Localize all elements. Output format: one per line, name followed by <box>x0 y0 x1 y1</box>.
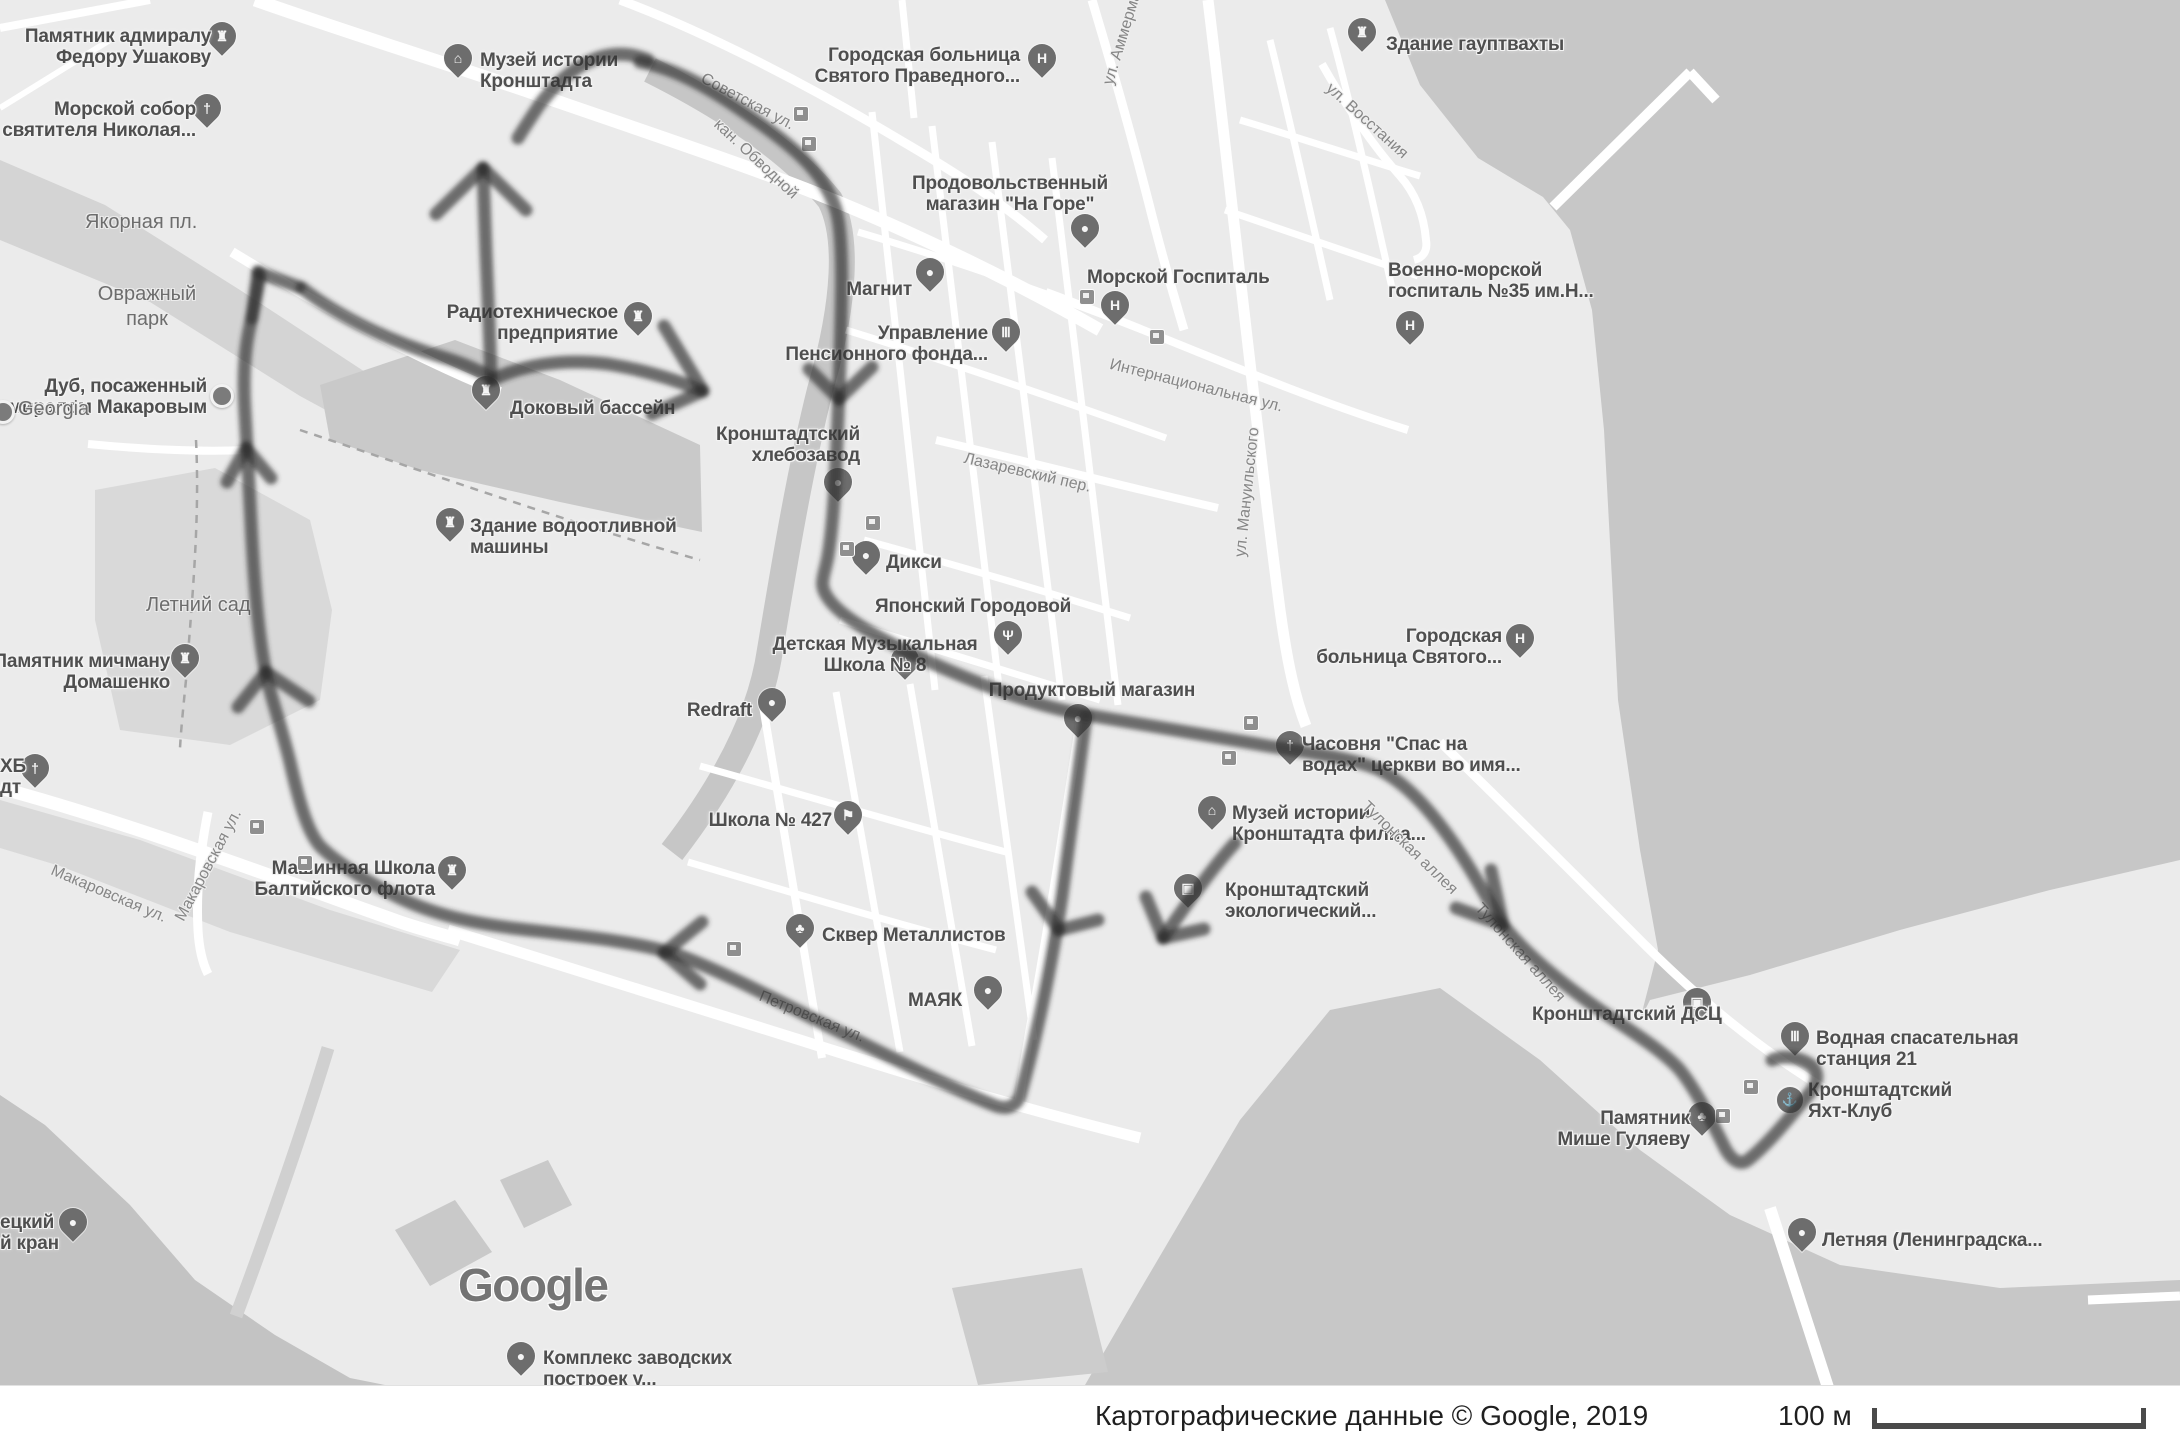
bus-stop-icon <box>726 941 742 957</box>
castle-icon: ♜ <box>436 508 464 536</box>
poi-label-kronshtadtsky-hlebozavod: Кронштадтскийхлебозавод <box>716 424 860 467</box>
poi-label-prodovolstvenny-magazin: Продовольственныймагазин "На Горе" <box>912 173 1108 216</box>
poi-label-tserkov-ehb-fragment: ХБдт <box>0 756 26 799</box>
poi-label-shkola-427: Школа № 427 <box>709 810 832 831</box>
poi-label-redraft: Redraft <box>687 700 752 721</box>
museum-icon: ⌂ <box>1198 796 1226 824</box>
poi-label-zdanie-vodootlivnoy-mashiny: Здание водоотливноймашины <box>470 516 677 559</box>
castle-icon: ♜ <box>438 856 466 884</box>
poi-label-kronshtadtsky-dsc: Кронштадтский ДСЦ <box>1532 1004 1722 1025</box>
poi-label-mashinnaya-shkola: Машинная ШколаБалтийского флота <box>254 858 435 901</box>
poi-label-mayak: МАЯК <box>908 990 962 1011</box>
poi-label-radiotehnicheskoe-predpriyatie: Радиотехническоепредприятие <box>447 302 618 345</box>
camera-icon: ▣ <box>1174 874 1202 902</box>
poi-label-gorodskaya-bolnitsa-svyatogo: Городскаябольница Святого... <box>1316 626 1502 669</box>
shopping-bag-icon: ● <box>916 258 944 286</box>
hospital-icon[interactable]: H <box>1022 38 1062 78</box>
poi-label-gorodskaya-bolnitsa-pravednogo: Городская больницаСвятого Праведного... <box>815 45 1020 88</box>
restaurant-icon: Ψ <box>994 621 1022 649</box>
poi-overlay: ♜Памятник адмиралуФедору Ушакову†Морской… <box>0 0 2180 1452</box>
bus-stop-icon <box>1243 715 1259 731</box>
shopping-bag-icon[interactable]: ● <box>752 682 792 722</box>
bus-stop-icon <box>801 136 817 152</box>
church-cross-icon: † <box>193 94 221 122</box>
shopping-bag-icon[interactable]: ● <box>910 252 950 292</box>
tree-icon: ♣ <box>786 914 814 942</box>
castle-icon[interactable]: ♜ <box>165 638 205 678</box>
scale-bar <box>1872 1408 2146 1429</box>
castle-icon: ♜ <box>208 22 236 50</box>
area-label-3: Летний сад <box>146 594 250 617</box>
poi-label-yaponsky-gorodovoy: Японский Городовой <box>875 596 1071 617</box>
poi-label-morskoy-gospital: Морской Госпиталь <box>1087 267 1270 288</box>
castle-icon: ♜ <box>624 302 652 330</box>
bank-columns-icon[interactable]: Ⅲ <box>986 312 1026 352</box>
hospital-icon[interactable]: H <box>1095 285 1135 325</box>
bus-stop-icon <box>1743 1079 1759 1095</box>
poi-label-pamyatnik-ushakovu: Памятник адмиралуФедору Ушакову <box>25 26 211 69</box>
cart-icon[interactable]: ● <box>1058 698 1098 738</box>
dot-icon[interactable]: ● <box>501 1336 541 1376</box>
hospital-icon: H <box>1506 624 1534 652</box>
boat-icon[interactable]: ● <box>1782 1212 1822 1252</box>
poi-label-pamyatnik-domashenko: Памятник мичмануДомашенко <box>0 651 170 694</box>
cart-icon: ● <box>852 541 880 569</box>
area-label-2: парк <box>126 308 168 331</box>
poi-label-yaht-klub: КронштадтскийЯхт-Клуб <box>1808 1080 1952 1123</box>
tree-icon[interactable]: ♣ <box>780 908 820 948</box>
cart-icon: ● <box>1071 214 1099 242</box>
poi-label-kran-fragment: ецкийй кран <box>0 1212 59 1255</box>
castle-icon[interactable]: ♜ <box>430 502 470 542</box>
street-label-5: Интернациональная ул. <box>1108 356 1285 416</box>
scale-label: 100 м <box>1778 1400 1852 1432</box>
bus-stop-icon <box>297 855 313 871</box>
street-label-7: Макаровская ул. <box>48 862 169 927</box>
bank-columns-icon[interactable]: Ⅲ <box>1775 1016 1815 1056</box>
castle-icon: ♜ <box>1348 18 1376 46</box>
cart-icon: ● <box>1064 704 1092 732</box>
poi-label-georgia: Georgia <box>18 398 89 421</box>
anchor-icon[interactable]: ⚓ <box>1775 1085 1805 1115</box>
hospital-icon: H <box>1028 44 1056 72</box>
street-label-8: Макаровская ул. <box>172 807 246 925</box>
street-label-9: Петровская ул. <box>756 988 867 1047</box>
poi-label-upravlenie-pensionnogo-fonda: УправлениеПенсионного фонда... <box>785 323 988 366</box>
bus-stop-icon <box>1079 289 1095 305</box>
attribution-text: Картографические данные © Google, 2019 <box>1095 1400 1648 1432</box>
shopping-bag-icon: ● <box>758 688 786 716</box>
dot-icon: ● <box>59 1208 87 1236</box>
castle-icon[interactable]: ♜ <box>466 370 506 410</box>
poi-label-diksi: Дикси <box>886 552 942 573</box>
bus-stop-icon <box>1221 750 1237 766</box>
attribution-bar: Картографические данные © Google, 2019 1… <box>0 1385 2180 1452</box>
bank-columns-icon: Ⅲ <box>992 318 1020 346</box>
poi-label-chasovnya-spas-na-vodah: Часовня "Спас наводах" церкви во имя... <box>1302 734 1521 777</box>
poi-label-magnit: Магнит <box>846 279 912 300</box>
area-label-1: Овражный <box>98 283 196 306</box>
dot-icon: ● <box>507 1342 535 1370</box>
bus-stop-icon <box>1715 1108 1731 1124</box>
dot-icon[interactable]: ● <box>53 1202 93 1242</box>
school-icon: ⚑ <box>834 801 862 829</box>
museum-icon: ⌂ <box>444 44 472 72</box>
poi-label-skver-metallistov: Сквер Металлистов <box>822 925 1005 946</box>
street-label-6: Лазаревский пер. <box>962 450 1093 497</box>
street-label-4: ул. Мануильского <box>1232 427 1264 558</box>
poi-label-kronshtadtsky-ekologichesky: Кронштадтскийэкологический... <box>1225 880 1376 923</box>
hospital-icon: H <box>1101 291 1129 319</box>
castle-icon: ♜ <box>171 644 199 672</box>
hospital-icon[interactable]: H <box>1500 618 1540 658</box>
bus-stop-icon <box>839 541 855 557</box>
museum-icon[interactable]: ⌂ <box>1192 790 1232 830</box>
poi-label-vodnaya-spasatelnaya-stantsiya: Водная спасательнаястанция 21 <box>1816 1028 2018 1071</box>
bank-columns-icon: Ⅲ <box>1781 1022 1809 1050</box>
poi-label-pamyatnik-mishe-gulyaevu: ПамятникМише Гуляеву <box>1557 1108 1690 1151</box>
poi-label-zdanie-gauptvahty: Здание гауптвахты <box>1386 34 1564 55</box>
restaurant-icon[interactable]: Ψ <box>988 615 1028 655</box>
street-label-11: Тулонская аллея <box>1471 900 1569 1006</box>
poi-label-detskaya-muz-shkola-8: Детская МузыкальнаяШкола № 8 <box>772 634 977 677</box>
poi-label-letnyaya-pristan: Летняя (Ленинградска... <box>1822 1230 2043 1251</box>
google-logo[interactable]: Google <box>458 1258 607 1312</box>
dot-icon[interactable]: ● <box>818 462 858 502</box>
castle-icon[interactable]: ♜ <box>618 296 658 336</box>
poi-label-morskoy-sobor: Морской соборсвятителя Николая... <box>2 99 196 142</box>
poi-label-produktovy-magazin: Продуктовый магазин <box>989 680 1195 701</box>
bus-stop-icon <box>249 819 265 835</box>
poi-label-voenno-morskoy-gospital: Военно-морскойгоспиталь №35 им.Н... <box>1388 260 1594 303</box>
church-cross-icon: † <box>1276 731 1304 759</box>
castle-icon: ♜ <box>472 376 500 404</box>
street-label-3: ул. Восстания <box>1322 80 1411 163</box>
dot-icon[interactable]: ● <box>968 970 1008 1010</box>
poi-label-dokovy-basseyn: Доковый бассейн <box>510 398 675 419</box>
bus-stop-icon <box>865 515 881 531</box>
school-icon[interactable]: ⚑ <box>828 795 868 835</box>
boat-icon: ● <box>1788 1218 1816 1246</box>
hospital-icon: H <box>1396 311 1424 339</box>
hospital-icon[interactable]: H <box>1390 305 1430 345</box>
museum-icon[interactable]: ⌂ <box>438 38 478 78</box>
bus-stop-icon <box>1149 329 1165 345</box>
dot-icon: ● <box>974 976 1002 1004</box>
camera-icon[interactable]: ▣ <box>1168 868 1208 908</box>
tree-icon: ♣ <box>1688 1102 1716 1130</box>
map-canvas[interactable]: ♜Памятник адмиралуФедору Ушакову†Морской… <box>0 0 2180 1452</box>
castle-icon[interactable]: ♜ <box>1342 12 1382 52</box>
castle-icon[interactable]: ♜ <box>432 850 472 890</box>
bus-stop-icon <box>793 106 809 122</box>
dot-icon[interactable] <box>210 384 234 408</box>
street-label-2: ул. Аммермана <box>1100 0 1151 87</box>
area-label-0: Якорная пл. <box>85 211 197 234</box>
poi-label-muzey-istorii-kronshtadta: Музей историиКронштадта <box>480 50 618 93</box>
dot-icon: ● <box>824 468 852 496</box>
